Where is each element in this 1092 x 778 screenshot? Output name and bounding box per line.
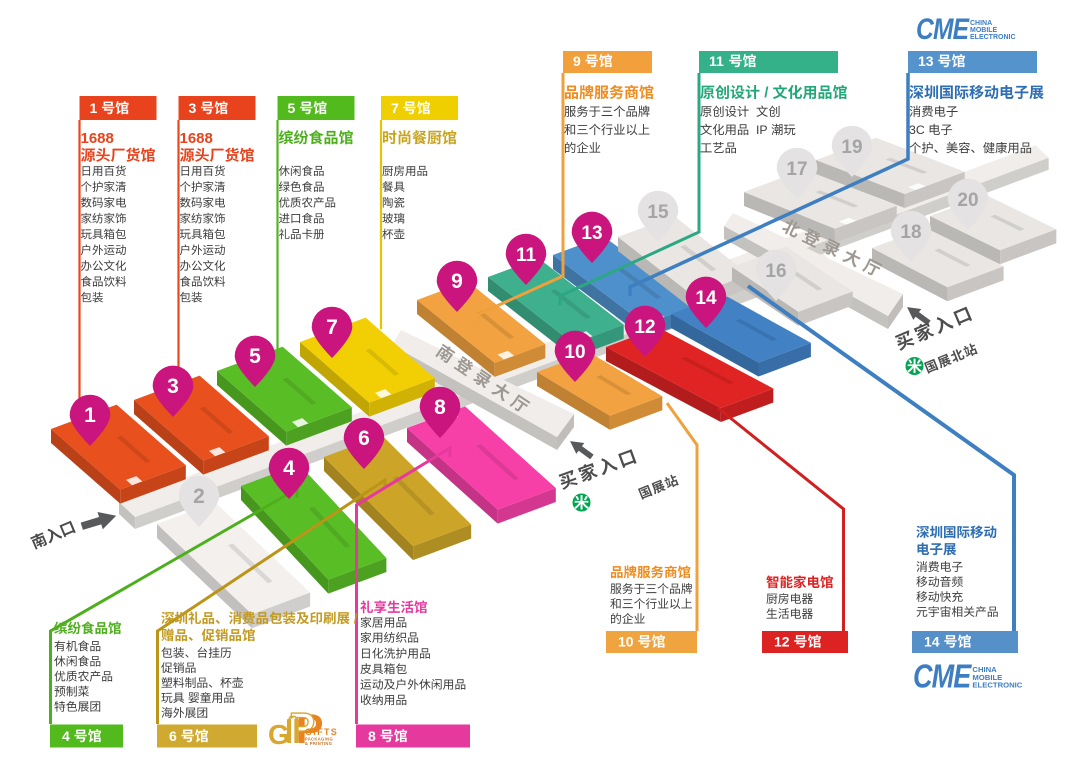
svg-text:17: 17 bbox=[786, 159, 807, 180]
svg-text:12: 12 bbox=[634, 317, 655, 338]
svg-text:10: 10 bbox=[564, 342, 585, 363]
svg-text:19: 19 bbox=[841, 137, 862, 158]
svg-text:5: 5 bbox=[249, 345, 261, 368]
svg-text:1688: 1688 bbox=[81, 130, 114, 147]
svg-text:/: / bbox=[354, 611, 358, 626]
svg-text:9: 9 bbox=[573, 53, 581, 69]
svg-text:13: 13 bbox=[581, 223, 602, 244]
svg-text:14: 14 bbox=[924, 634, 940, 650]
svg-text:6: 6 bbox=[169, 728, 177, 744]
svg-text:15: 15 bbox=[647, 202, 669, 223]
svg-text:16: 16 bbox=[765, 261, 786, 282]
svg-text:4: 4 bbox=[283, 457, 295, 480]
svg-text:CHINA: CHINA bbox=[970, 20, 992, 27]
svg-text:IP: IP bbox=[756, 123, 768, 137]
svg-text:7: 7 bbox=[391, 100, 399, 116]
svg-text:18: 18 bbox=[900, 222, 921, 243]
svg-text:ELECTRONIC: ELECTRONIC bbox=[970, 34, 1016, 41]
svg-text:6: 6 bbox=[358, 427, 370, 450]
svg-text:ELECTRONIC: ELECTRONIC bbox=[972, 681, 1022, 690]
svg-text:1688: 1688 bbox=[180, 130, 213, 147]
svg-text:10: 10 bbox=[618, 634, 634, 650]
svg-text:3: 3 bbox=[167, 375, 179, 398]
svg-text:13: 13 bbox=[918, 53, 934, 69]
svg-text:7: 7 bbox=[326, 316, 338, 339]
svg-text:8: 8 bbox=[434, 396, 446, 419]
svg-text:12: 12 bbox=[774, 634, 790, 650]
svg-text:11: 11 bbox=[516, 245, 537, 266]
svg-text:14: 14 bbox=[695, 288, 717, 309]
svg-text:4: 4 bbox=[62, 728, 70, 744]
svg-text:11: 11 bbox=[709, 53, 724, 69]
svg-text:9: 9 bbox=[451, 270, 463, 293]
svg-text:CME: CME bbox=[913, 659, 972, 695]
svg-text:8: 8 bbox=[368, 728, 376, 744]
svg-text:CME: CME bbox=[916, 12, 970, 46]
svg-text:& PRINTING: & PRINTING bbox=[305, 741, 332, 746]
svg-text:1: 1 bbox=[84, 404, 96, 427]
svg-text:2: 2 bbox=[193, 485, 205, 508]
svg-text:1: 1 bbox=[90, 100, 98, 116]
svg-text:MOBILE: MOBILE bbox=[970, 27, 998, 34]
svg-text:G: G bbox=[268, 719, 290, 750]
svg-text:3C: 3C bbox=[909, 123, 925, 137]
svg-text:20: 20 bbox=[957, 190, 978, 211]
svg-text:5: 5 bbox=[288, 100, 296, 116]
svg-text:3: 3 bbox=[189, 100, 197, 116]
svg-text:GIFTS: GIFTS bbox=[305, 727, 338, 737]
